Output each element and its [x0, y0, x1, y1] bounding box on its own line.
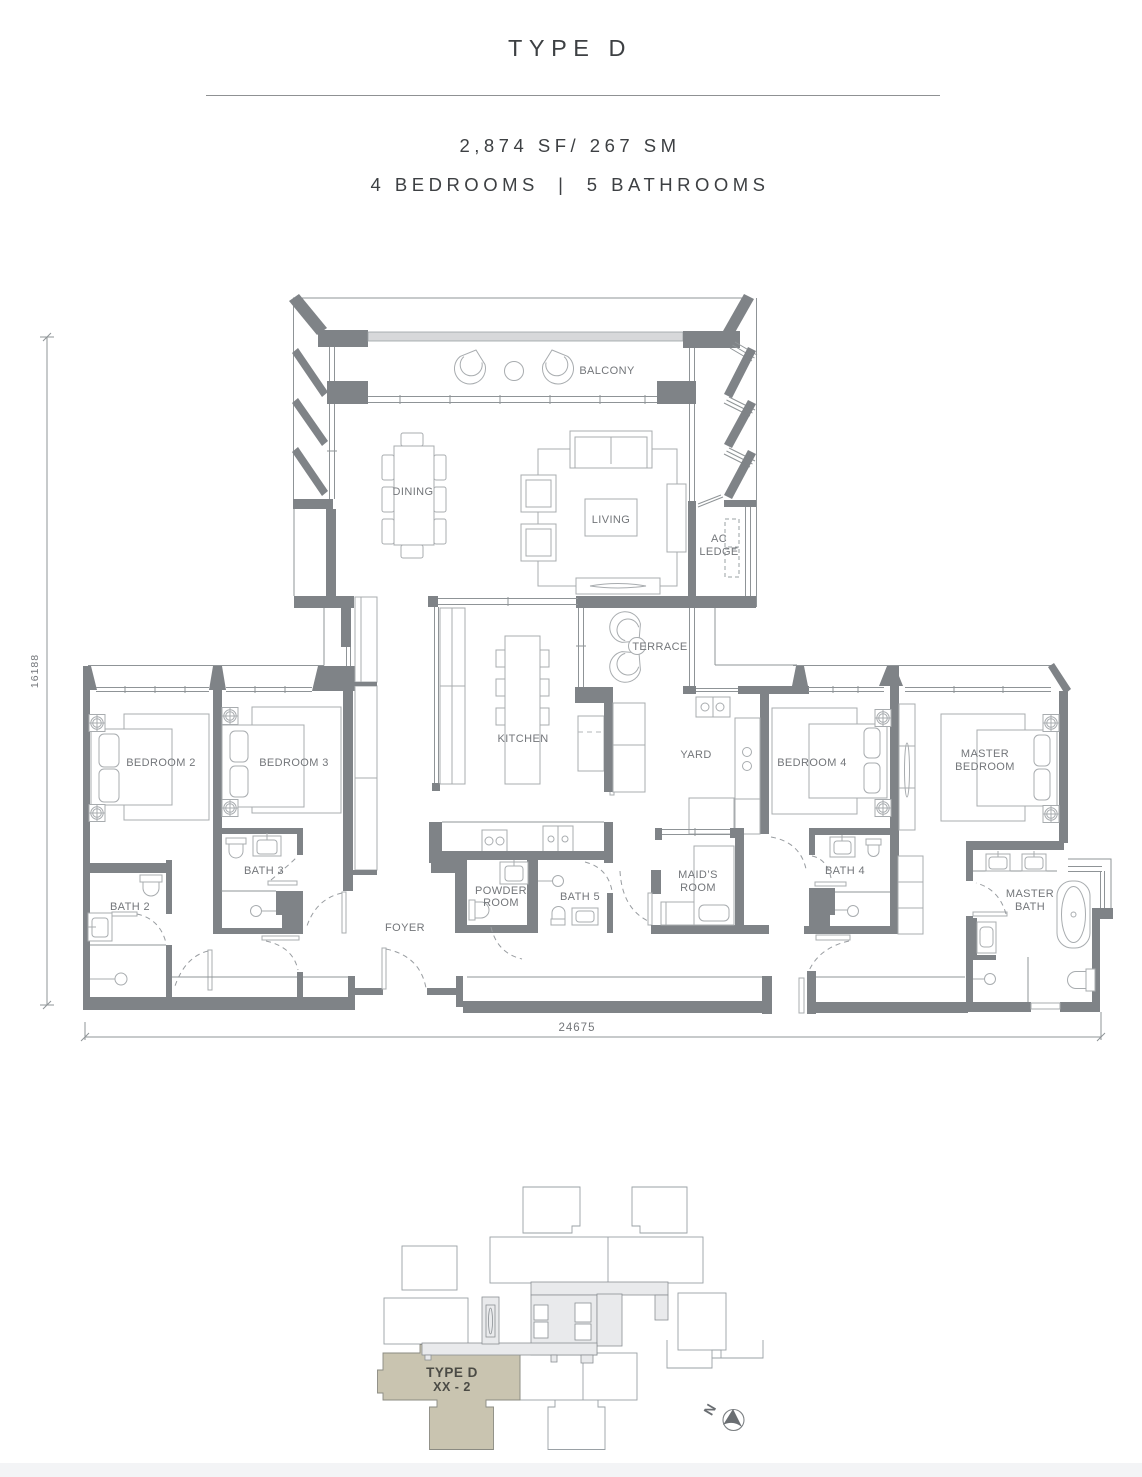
svg-text:LIVING: LIVING [592, 514, 630, 526]
svg-text:YARD: YARD [680, 749, 711, 761]
svg-text:BEDROOM 2: BEDROOM 2 [126, 757, 196, 769]
svg-text:2,874 SF/ 267 SM: 2,874 SF/ 267 SM [459, 135, 680, 156]
svg-text:XX - 2: XX - 2 [433, 1380, 471, 1394]
svg-text:DINING: DINING [393, 486, 434, 498]
svg-text:24675: 24675 [559, 1022, 596, 1034]
svg-text:BATH: BATH [1015, 901, 1045, 913]
svg-text:BATH 3: BATH 3 [244, 865, 284, 877]
svg-text:BEDROOM: BEDROOM [955, 761, 1015, 773]
svg-text:16188: 16188 [29, 654, 41, 688]
svg-text:TERRACE: TERRACE [632, 641, 687, 653]
svg-text:BALCONY: BALCONY [579, 365, 635, 377]
svg-text:KITCHEN: KITCHEN [497, 733, 548, 745]
svg-text:FOYER: FOYER [385, 922, 425, 934]
svg-text:BATH 2: BATH 2 [110, 901, 150, 913]
svg-text:BEDROOM 4: BEDROOM 4 [777, 757, 847, 769]
svg-text:BATH 5: BATH 5 [560, 891, 600, 903]
svg-text:ROOM: ROOM [483, 897, 519, 909]
svg-text:4 BEDROOMS | 5 BATHROOMS: 4 BEDROOMS | 5 BATHROOMS [370, 174, 769, 195]
svg-text:TYPE D: TYPE D [508, 35, 632, 61]
svg-text:BATH 4: BATH 4 [825, 865, 865, 877]
svg-text:LEDGE: LEDGE [699, 546, 738, 558]
svg-text:MASTER: MASTER [1006, 888, 1054, 900]
svg-text:ROOM: ROOM [680, 882, 716, 894]
svg-text:MAID’S: MAID’S [678, 869, 718, 881]
svg-text:BEDROOM 3: BEDROOM 3 [259, 757, 329, 769]
svg-text:POWDER: POWDER [475, 885, 527, 897]
svg-text:TYPE D: TYPE D [426, 1365, 478, 1380]
svg-text:MASTER: MASTER [961, 748, 1009, 760]
svg-text:AC: AC [711, 533, 727, 545]
